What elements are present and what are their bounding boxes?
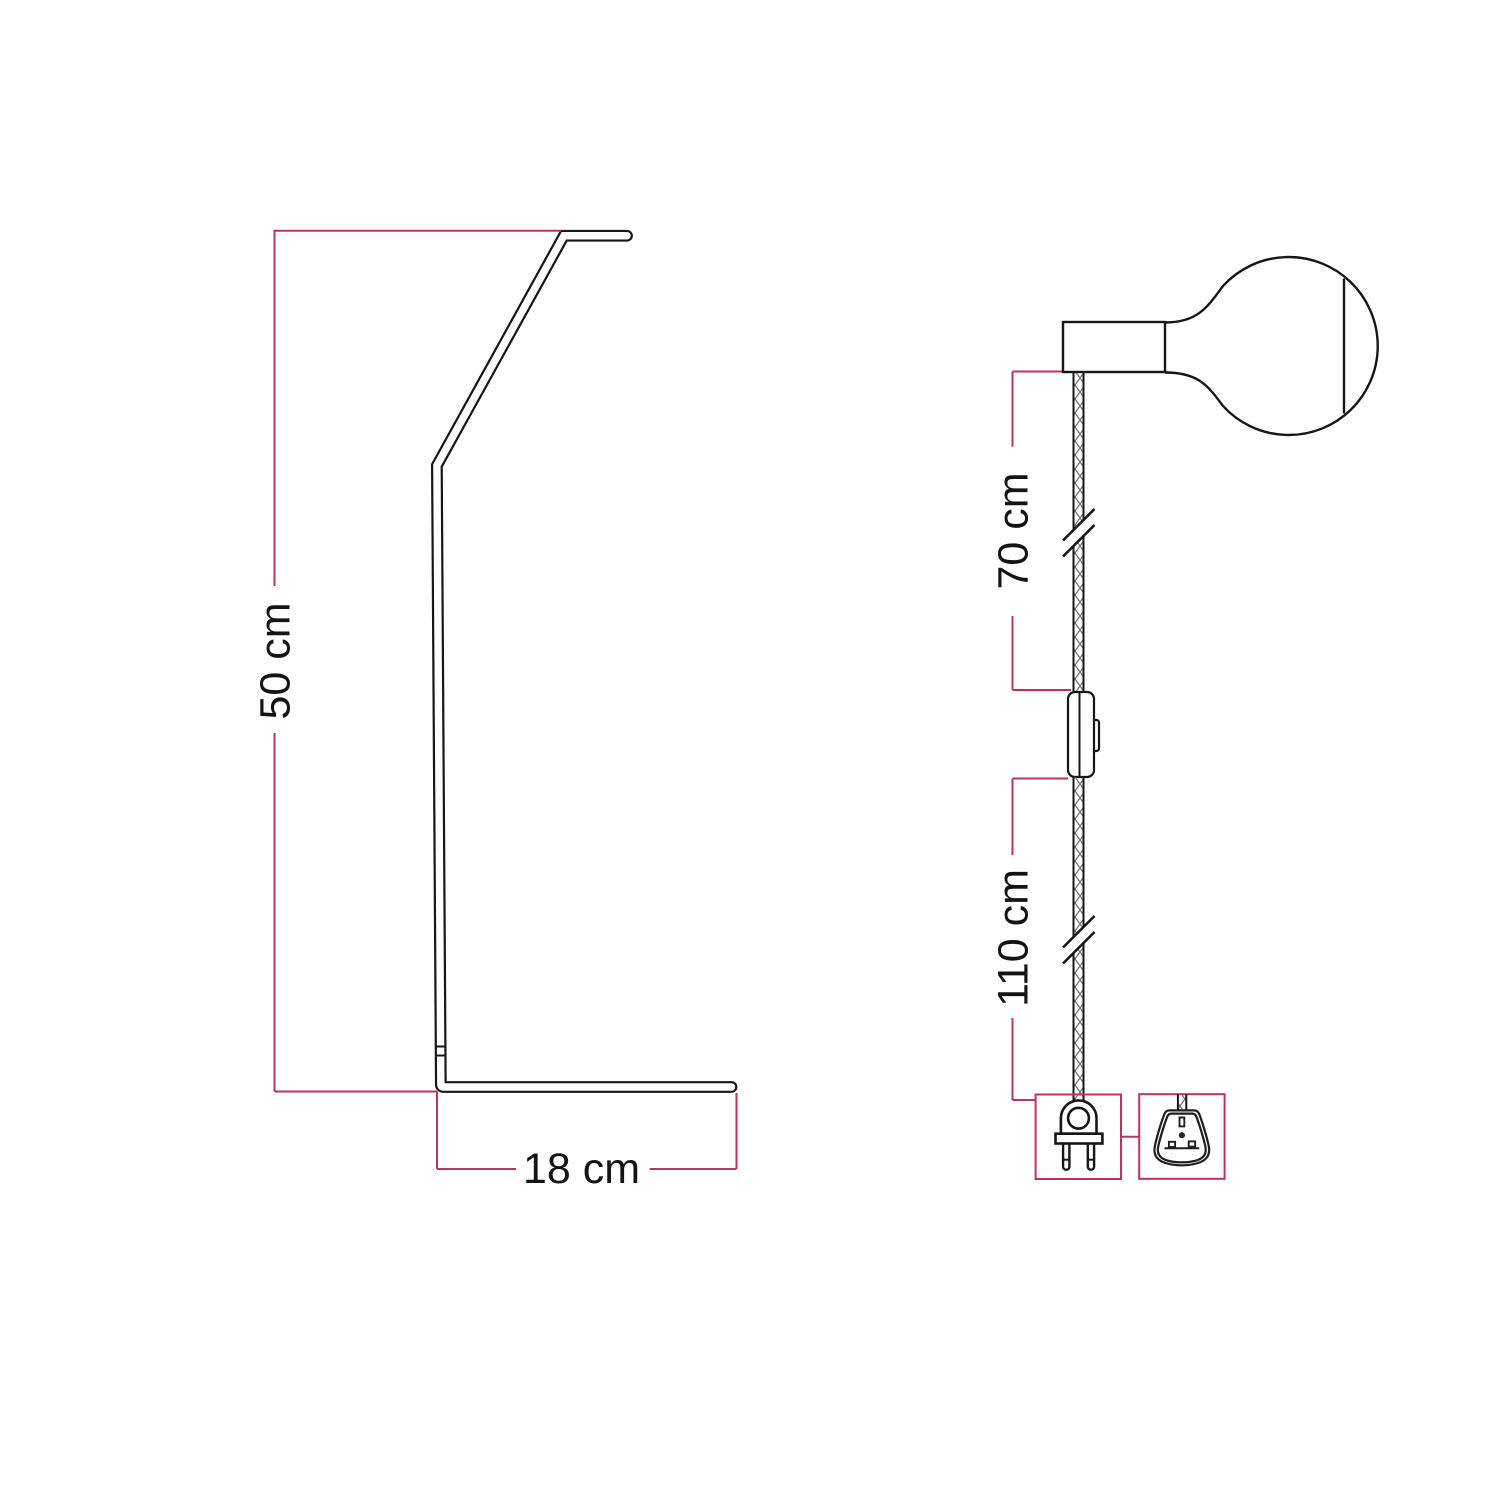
svg-text:70 cm: 70 cm: [989, 472, 1037, 589]
svg-text:50 cm: 50 cm: [251, 602, 299, 719]
svg-text:18 cm: 18 cm: [523, 1145, 640, 1193]
svg-text:110 cm: 110 cm: [989, 869, 1037, 1007]
